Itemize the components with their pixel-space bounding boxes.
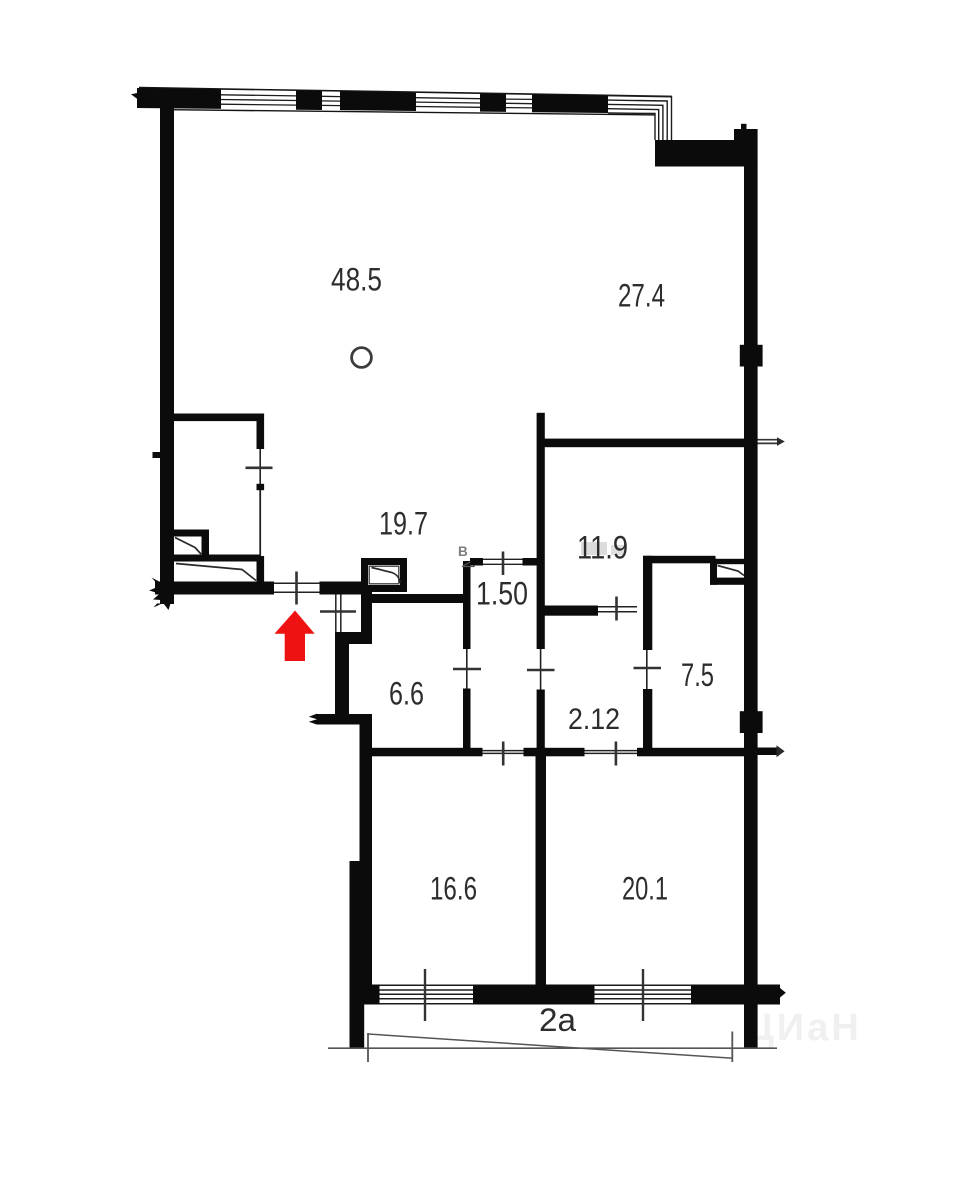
svg-text:6.6: 6.6 bbox=[389, 676, 424, 712]
svg-text:11.9: 11.9 bbox=[577, 530, 628, 566]
svg-text:20.1: 20.1 bbox=[622, 871, 668, 907]
svg-text:19.7: 19.7 bbox=[379, 506, 428, 542]
svg-text:48.5: 48.5 bbox=[331, 262, 382, 298]
svg-text:2.12: 2.12 bbox=[568, 703, 620, 736]
svg-text:16.6: 16.6 bbox=[430, 871, 477, 907]
svg-text:2a: 2a bbox=[539, 1002, 576, 1038]
svg-text:1.50: 1.50 bbox=[476, 576, 528, 612]
svg-text:7.5: 7.5 bbox=[681, 657, 714, 693]
svg-text:27.4: 27.4 bbox=[618, 278, 665, 314]
svg-text:ЦИаН: ЦИаН bbox=[746, 1007, 862, 1049]
svg-text:В: В bbox=[458, 544, 468, 559]
